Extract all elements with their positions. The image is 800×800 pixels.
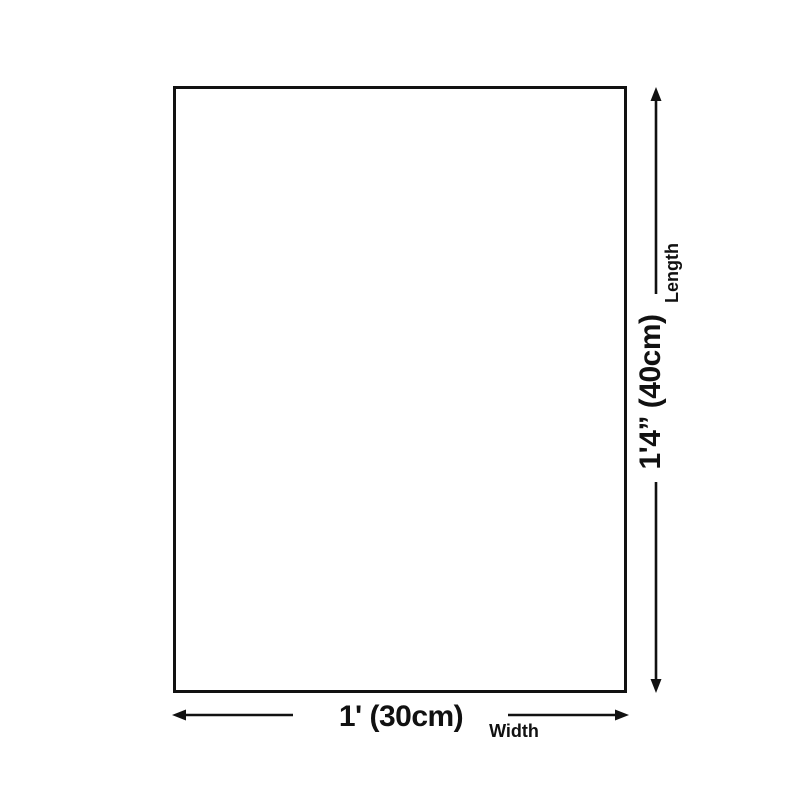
width-arrow-left-icon <box>172 707 293 723</box>
length-label: Length <box>661 228 683 318</box>
dimension-diagram: 1'4” (40cm) Length 1' (30cm) Width <box>0 0 800 800</box>
length-arrow-down-icon <box>648 482 664 693</box>
product-canvas-rectangle <box>173 86 627 693</box>
width-label: Width <box>464 720 564 742</box>
